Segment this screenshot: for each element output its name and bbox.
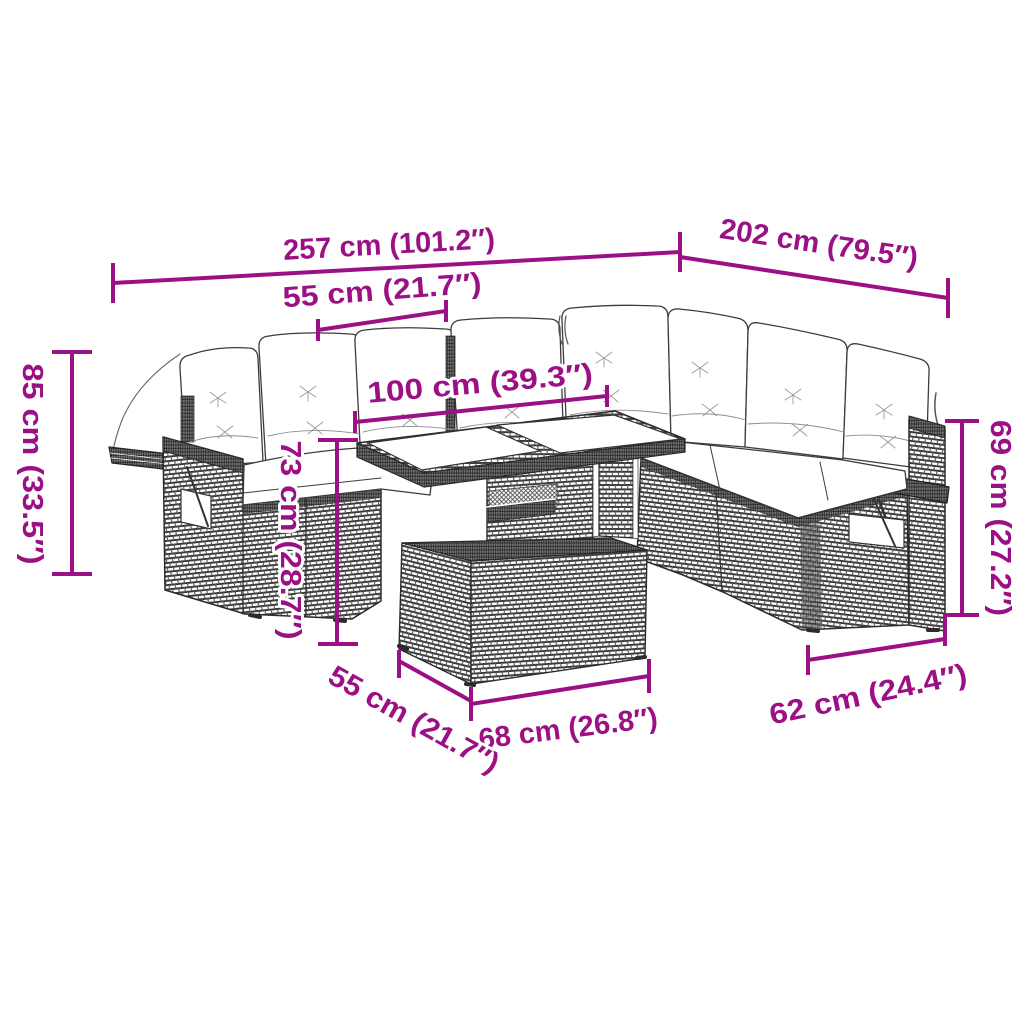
svg-text:69 cm (27.2″): 69 cm (27.2″) <box>984 420 1016 616</box>
svg-text:73 cm (28.7″): 73 cm (28.7″) <box>274 441 306 640</box>
svg-text:85 cm (33.5″): 85 cm (33.5″) <box>16 364 48 565</box>
